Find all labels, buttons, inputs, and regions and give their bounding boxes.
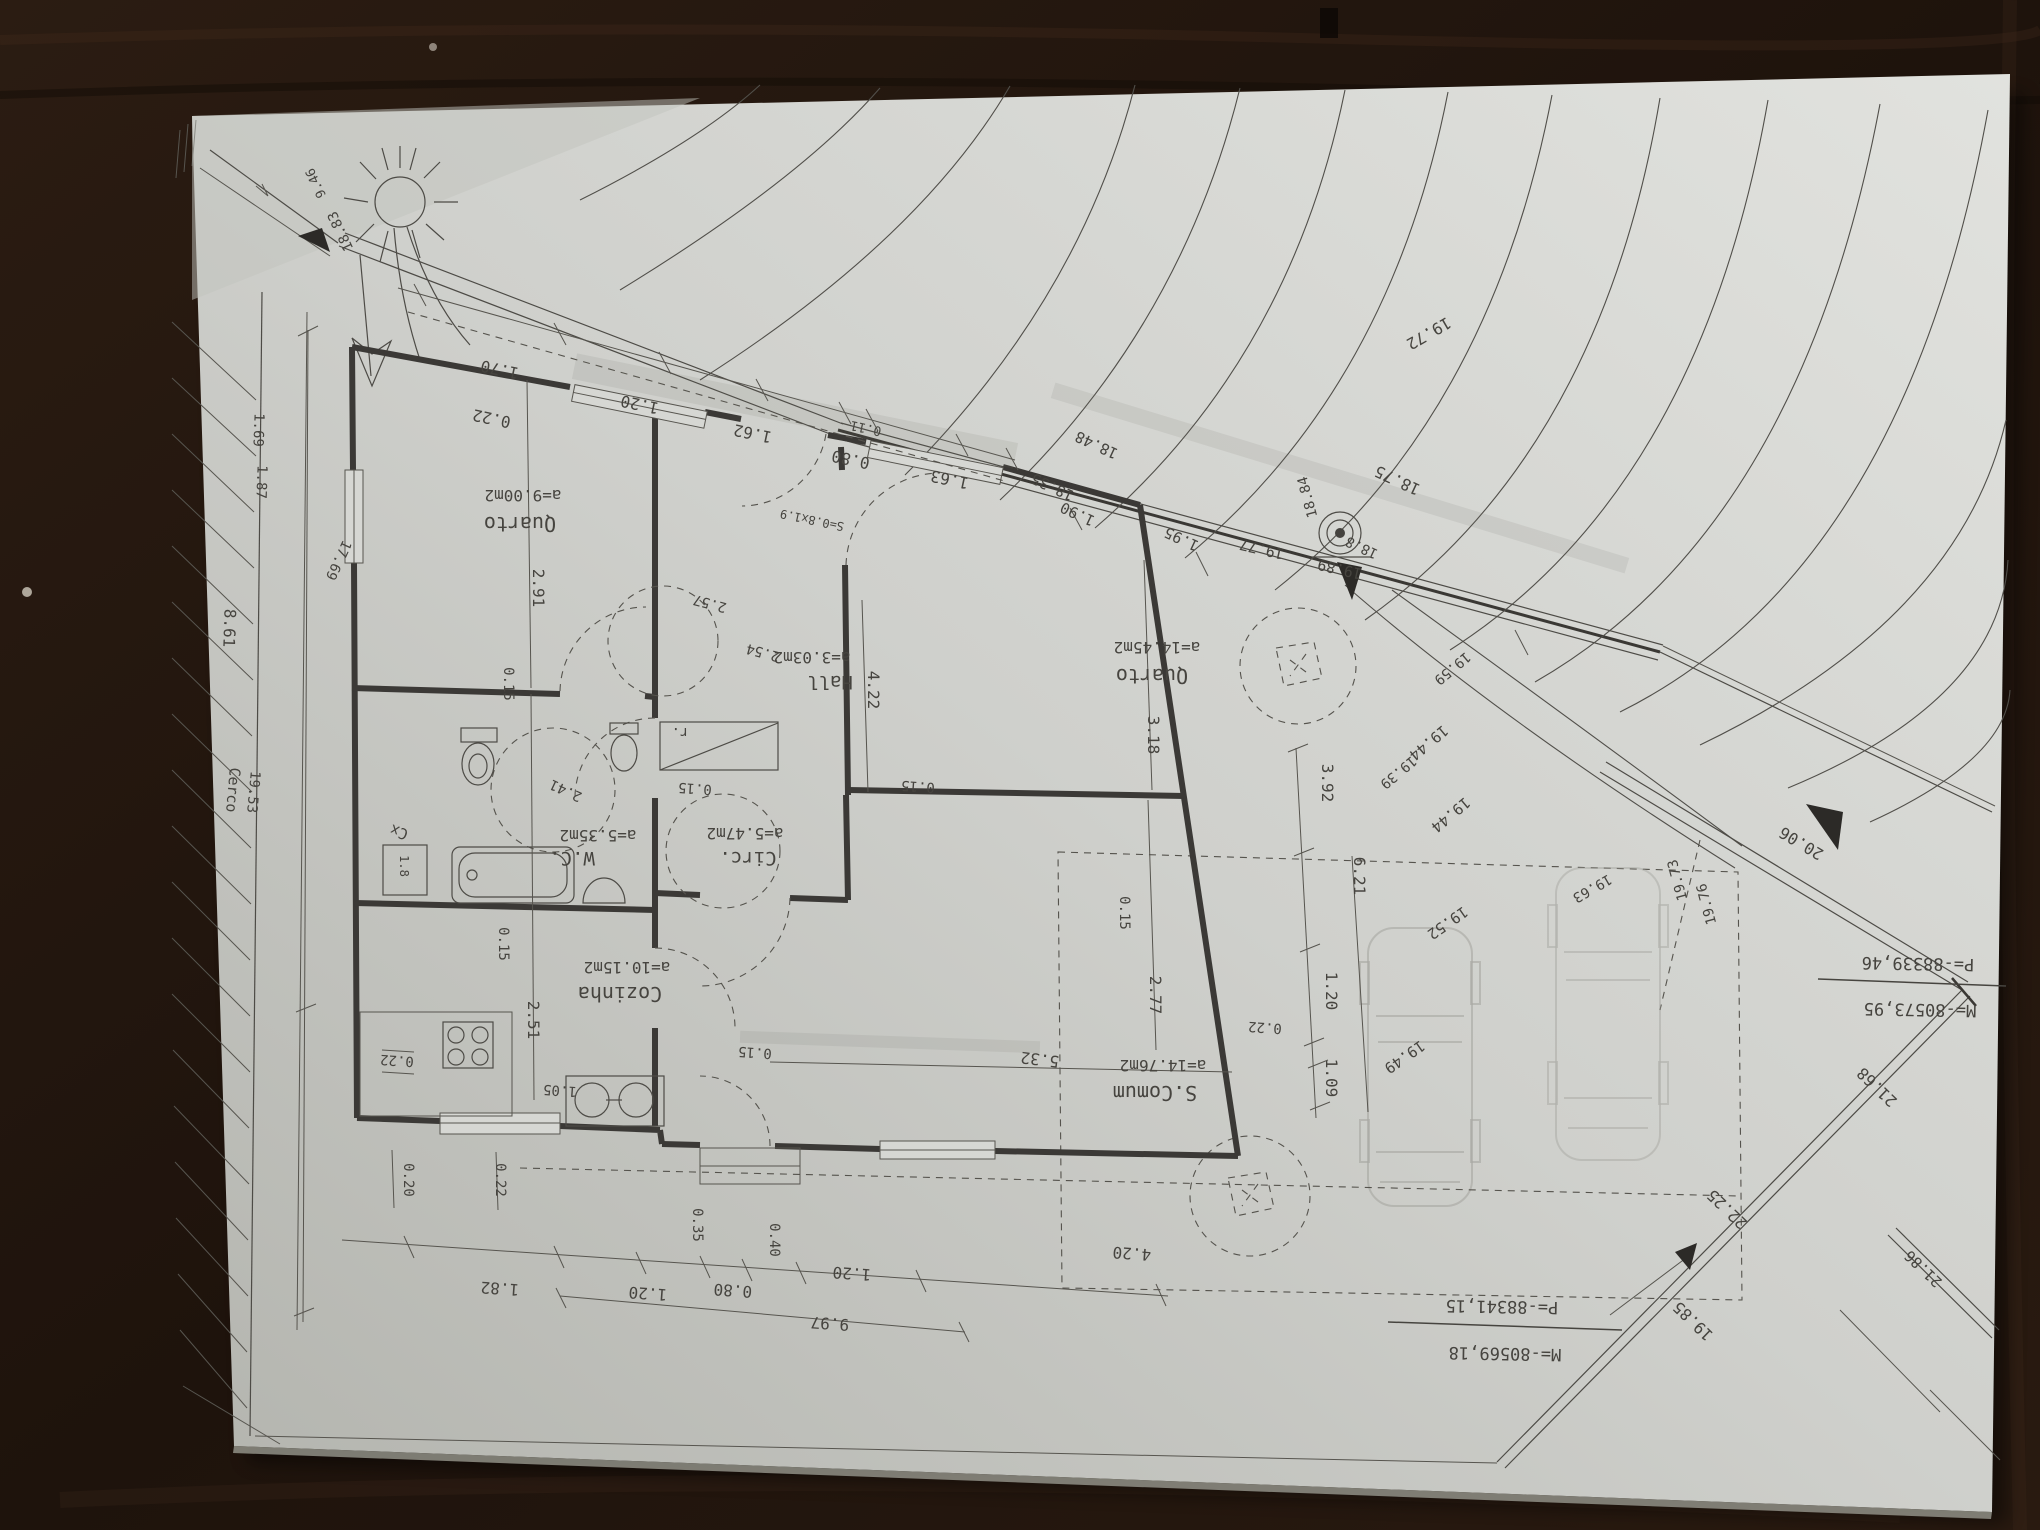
dim: 0.15: [1116, 896, 1132, 930]
utility-box-size: 1.8: [397, 855, 411, 877]
room-label-quarto2: Quarto: [1116, 664, 1188, 688]
dim: 0.15: [678, 779, 713, 797]
dim: 0.40: [766, 1223, 782, 1257]
dim: 0.20: [400, 1163, 416, 1197]
dim: 1.20: [1322, 972, 1341, 1011]
dim: 1.87: [252, 465, 269, 499]
dim: 1.69: [249, 413, 266, 447]
room-area-cozinha: a=10.15m2: [584, 958, 671, 977]
room-area-wc: a=5.35m2: [559, 826, 636, 845]
closet-label: r.: [672, 724, 689, 740]
dim: 2.91: [529, 569, 548, 608]
room-area-hall: a=3.03m2: [773, 648, 850, 667]
room-label-quarto1: Quarto: [484, 512, 556, 536]
coordinate-b-p: P=-88341,15: [1446, 1295, 1559, 1317]
room-label-wc: W.C.: [549, 847, 595, 869]
room-label-hall: Hall: [807, 671, 853, 693]
dim: 8.61: [219, 608, 239, 647]
dim: 0.22: [492, 1163, 508, 1197]
dim: 0.80: [713, 1280, 753, 1302]
dim: 0.15: [738, 1043, 773, 1061]
dim: 1.05: [543, 1081, 578, 1099]
room-label-cozinha: Cozinha: [578, 982, 662, 1006]
room-label-scomum: S.Comum: [1113, 1081, 1197, 1105]
dim: 1.82: [480, 1278, 520, 1300]
paper-sheet: [176, 74, 2024, 1524]
dim: 0.15: [500, 667, 516, 701]
dim: 3.92: [1318, 764, 1337, 803]
coordinate-a-m: M=-80573,95: [1864, 998, 1977, 1020]
dim: 9.97: [810, 1313, 850, 1335]
room-area-quarto1: a=9.00m2: [484, 486, 561, 505]
dim: 3.18: [1144, 716, 1163, 755]
dim: 6.21: [1350, 857, 1369, 896]
dim: 1.20: [628, 1283, 668, 1305]
dim: 0.35: [689, 1208, 705, 1242]
room-area-scomum: a=14.76m2: [1120, 1056, 1207, 1075]
dim: 1.09: [1322, 1059, 1341, 1098]
room-area-quarto2: a=14.45m2: [1114, 638, 1201, 657]
paint-speck: [429, 43, 437, 51]
dim: 2.51: [524, 1001, 543, 1040]
room-area-circ: a=5.47m2: [706, 824, 783, 843]
dim: 0.22: [1248, 1018, 1283, 1036]
dim: 0.15: [495, 927, 511, 961]
dim: 1.20: [832, 1263, 872, 1285]
dim: 4.22: [864, 671, 883, 710]
coordinate-b-m: M=-80569,18: [1449, 1342, 1562, 1364]
dim: 2.77: [1146, 976, 1165, 1015]
dim: 0.15: [901, 777, 936, 795]
photo-of-floor-plan: { "rooms": [ {"name":"Quarto","area":"a=…: [0, 0, 2040, 1530]
paint-speck: [22, 587, 32, 597]
room-label-circ: Circ.: [719, 847, 776, 869]
dim: 4.20: [1112, 1243, 1152, 1265]
coordinate-a-p: P=-88339,46: [1862, 952, 1975, 974]
dim: 0.22: [380, 1051, 415, 1069]
